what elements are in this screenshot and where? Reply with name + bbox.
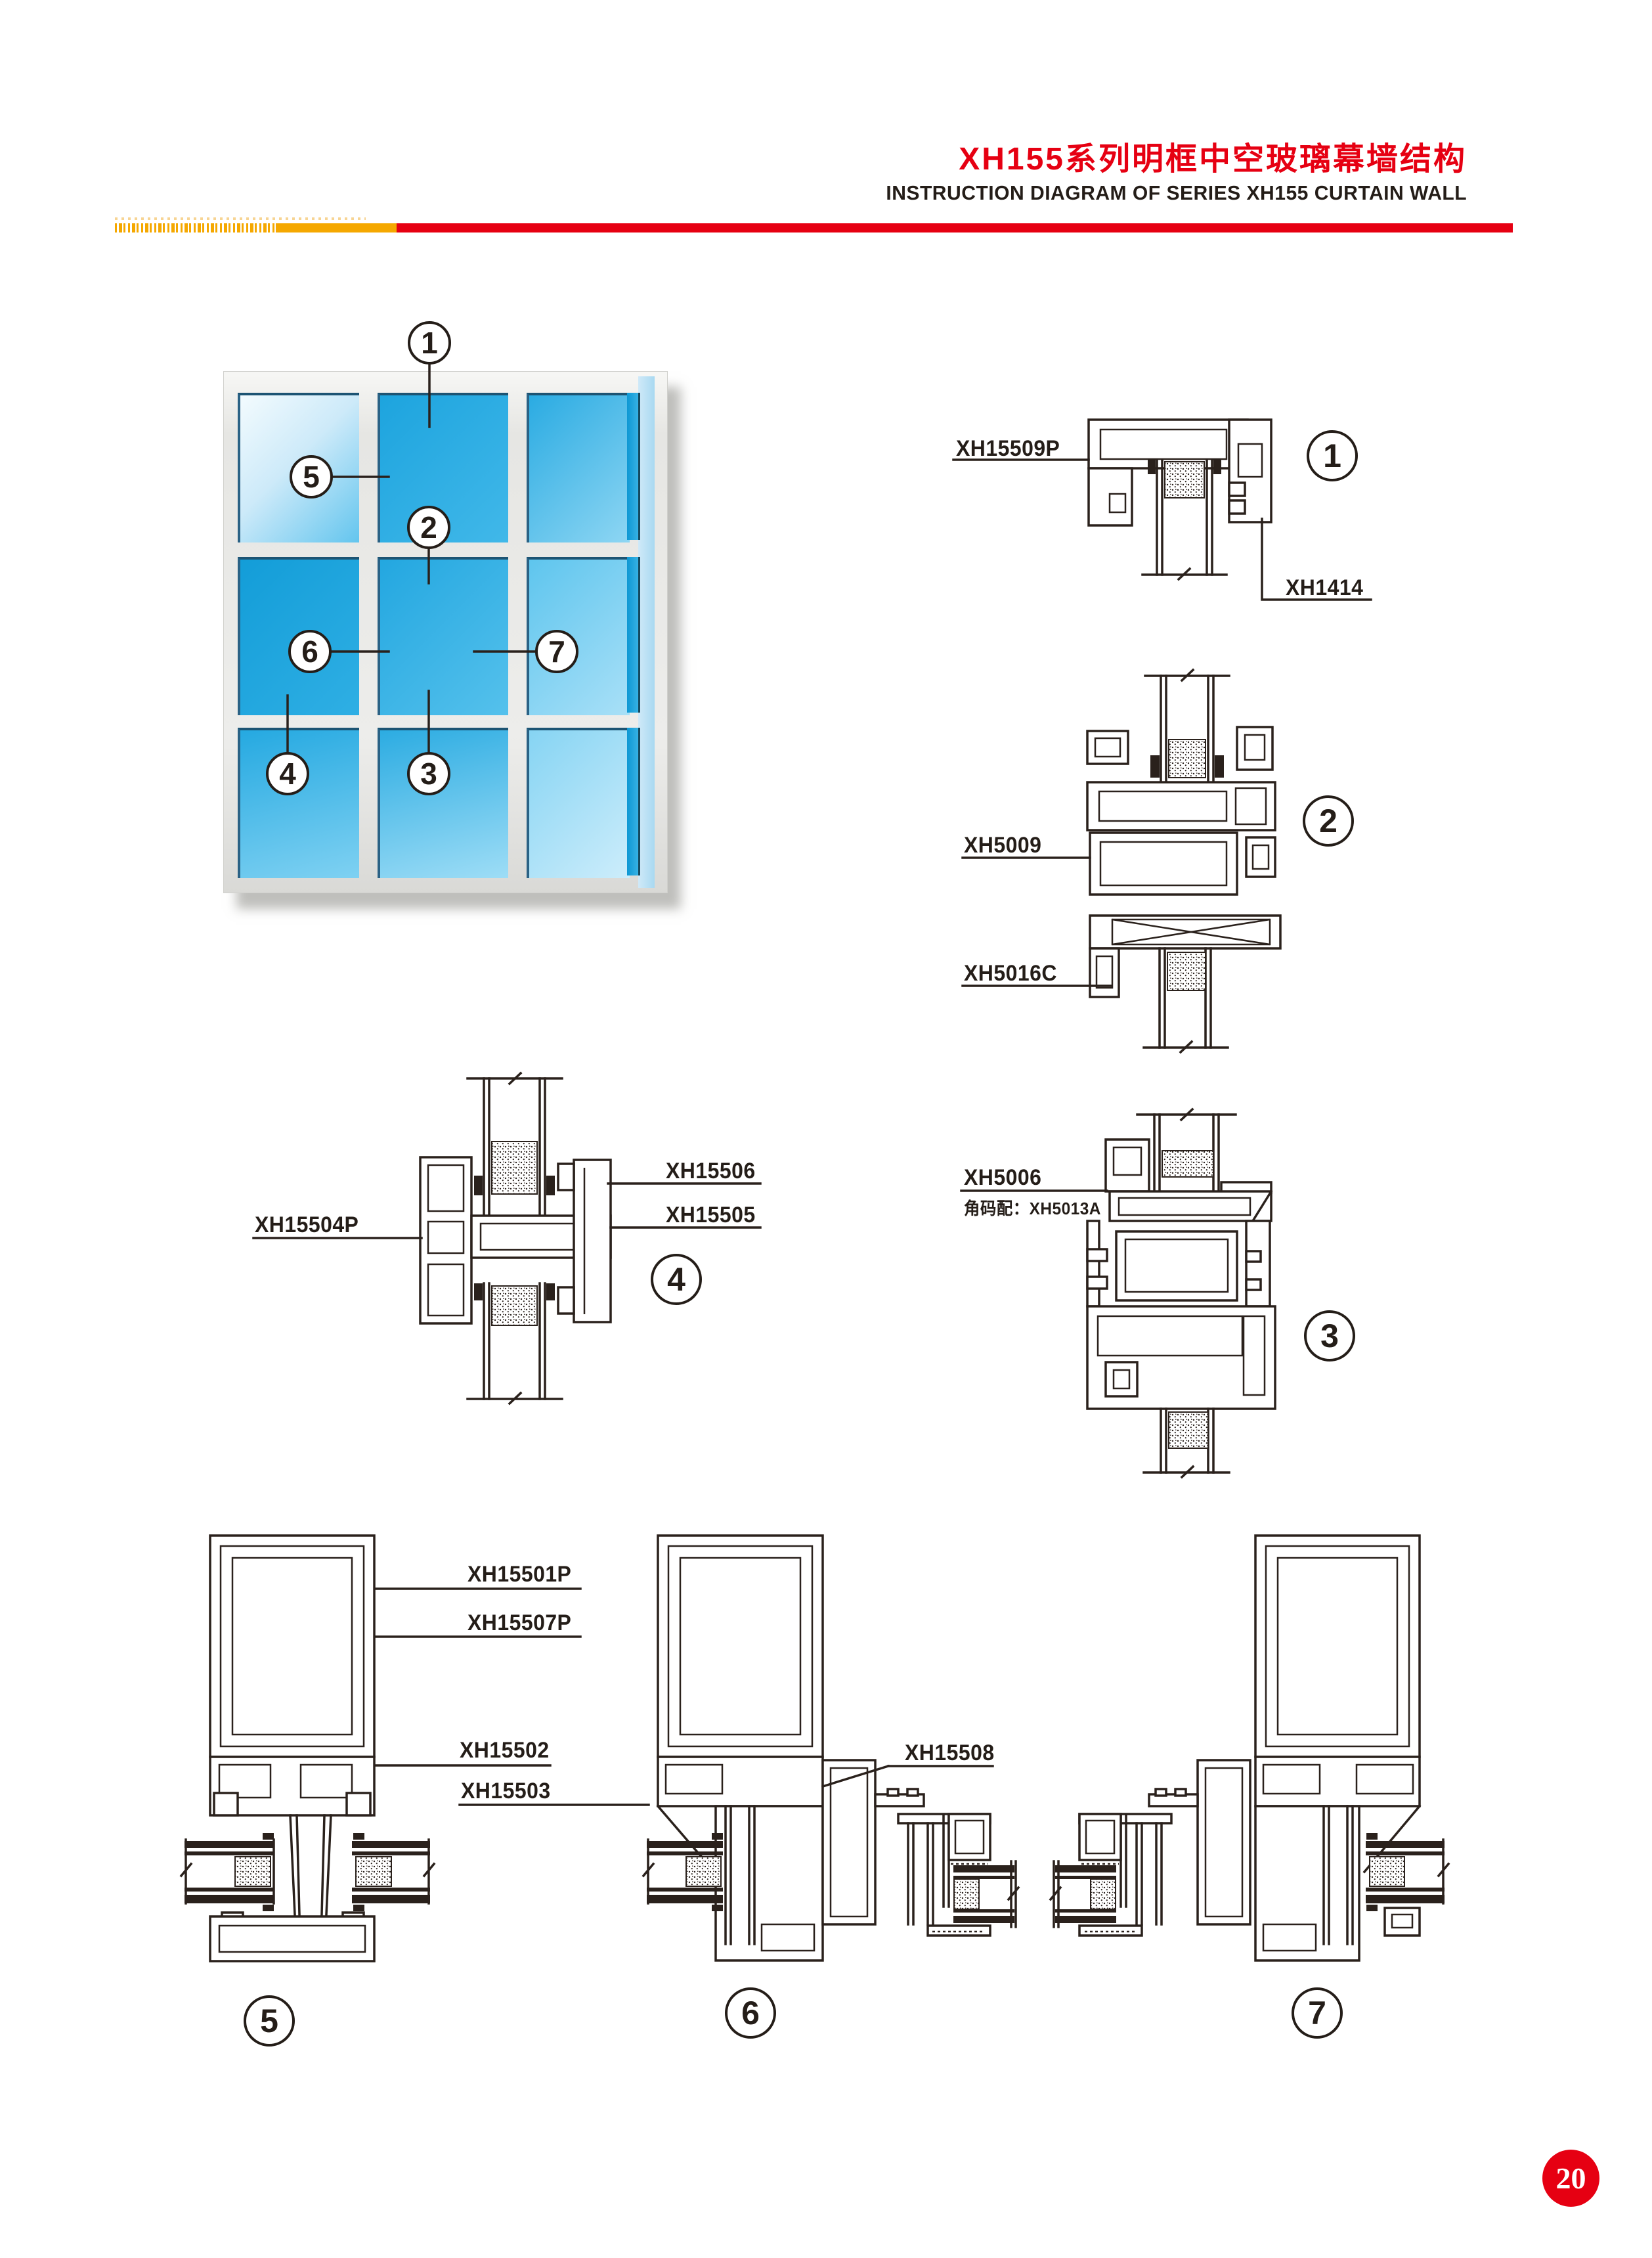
detail-2-number: 2 [1303, 795, 1354, 847]
label-xh5016c: XH5016C [964, 961, 1057, 986]
detail-4-drawing [253, 1073, 760, 1404]
detail-5-number: 5 [244, 1995, 295, 2047]
page-number: 20 [1556, 2161, 1586, 2196]
detail-4-number: 4 [651, 1254, 702, 1305]
label-xh15501p: XH15501P [467, 1562, 571, 1587]
label-xh15504p: XH15504P [255, 1212, 359, 1238]
label-xh5013a-note: 角码配：XH5013A [964, 1195, 1101, 1220]
label-xh5009: XH5009 [964, 833, 1041, 858]
window-callout-leaders [288, 365, 535, 752]
label-xh5006: XH5006 [964, 1165, 1041, 1191]
label-xh15508: XH15508 [905, 1740, 995, 1766]
window-callout-4: 4 [266, 752, 309, 795]
detail-5-drawing [181, 1536, 649, 1961]
detail-3-drawing [961, 1109, 1275, 1477]
page-number-badge: 20 [1542, 2150, 1599, 2207]
label-xh15509p: XH15509P [956, 436, 1060, 462]
window-callout-7: 7 [535, 630, 578, 673]
detail-7-drawing [1051, 1536, 1448, 1960]
label-xh15507p: XH15507P [467, 1610, 571, 1636]
detail-3-number: 3 [1304, 1310, 1355, 1361]
detail-1-number: 1 [1307, 430, 1358, 481]
diagram-linework [0, 0, 1652, 2258]
label-xh15505: XH15505 [666, 1203, 756, 1228]
window-callout-1: 1 [408, 321, 451, 365]
label-xh15506: XH15506 [666, 1159, 756, 1184]
label-xh15502: XH15502 [460, 1738, 550, 1763]
window-callout-5: 5 [290, 455, 333, 498]
label-xh15503: XH15503 [461, 1779, 551, 1804]
window-callout-3: 3 [407, 752, 450, 795]
label-xh1414: XH1414 [1286, 575, 1363, 601]
page: XH155系列明框中空玻璃幕墙结构 INSTRUCTION DIAGRAM OF… [0, 0, 1652, 2258]
detail-6-number: 6 [725, 1987, 776, 2039]
detail-2-drawing [963, 670, 1280, 1052]
detail-7-number: 7 [1292, 1987, 1343, 2039]
window-callout-6: 6 [288, 630, 332, 673]
window-callout-2: 2 [407, 506, 450, 549]
